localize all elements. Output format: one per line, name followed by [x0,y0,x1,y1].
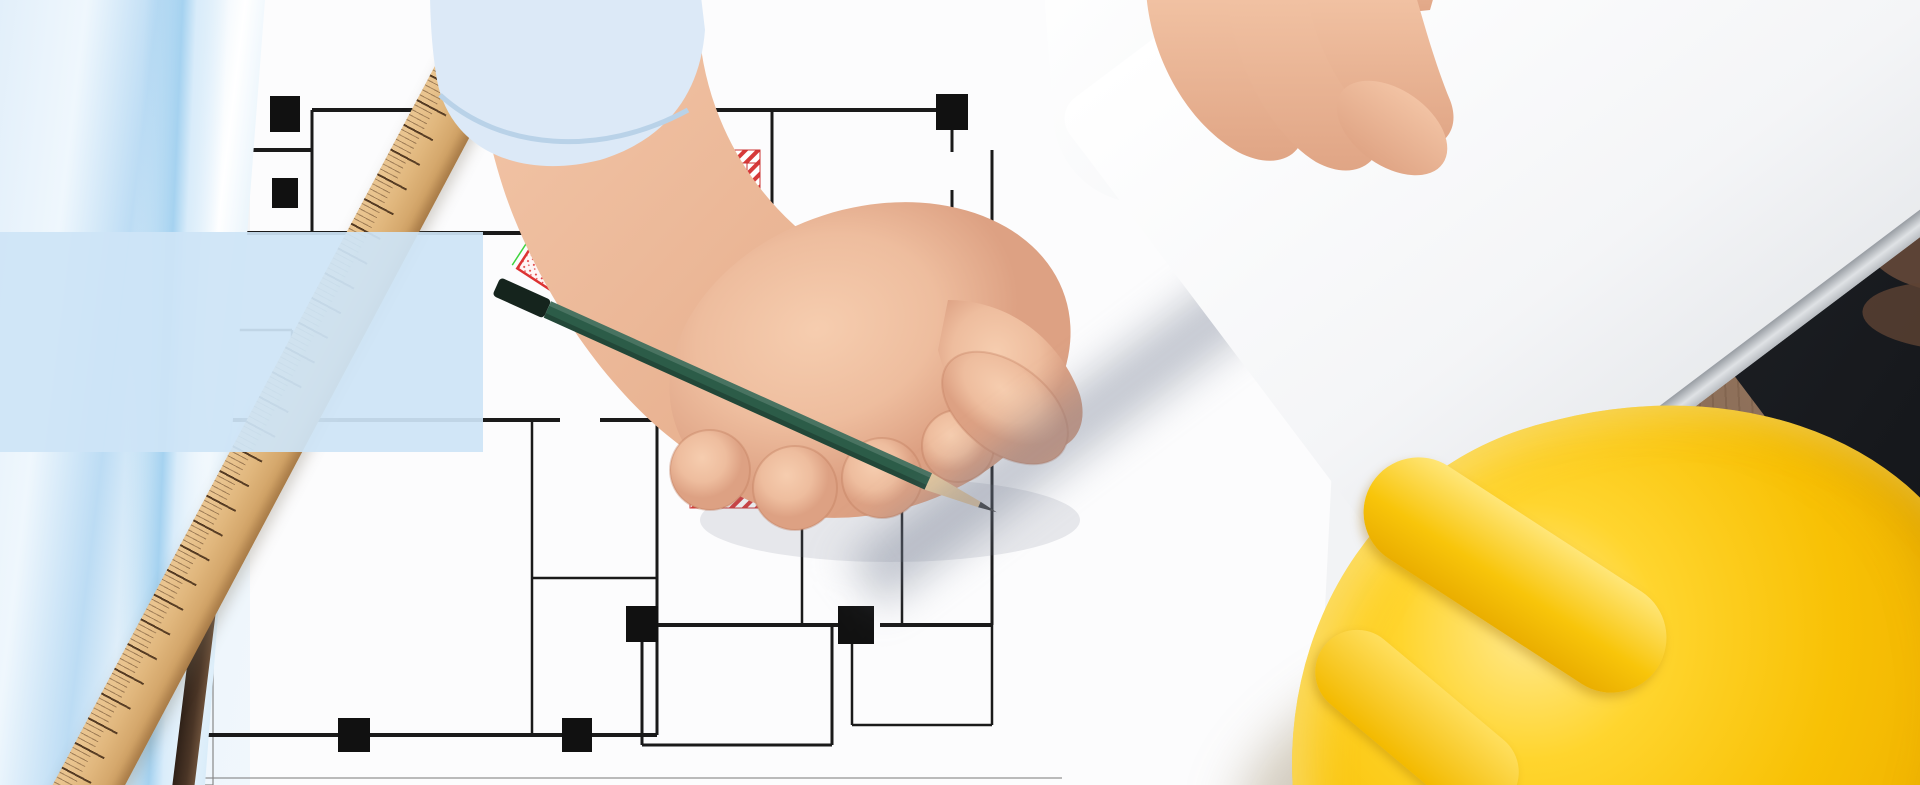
headline-panel [0,232,483,452]
hero-banner [0,0,1920,785]
pencil-cap [492,277,551,318]
